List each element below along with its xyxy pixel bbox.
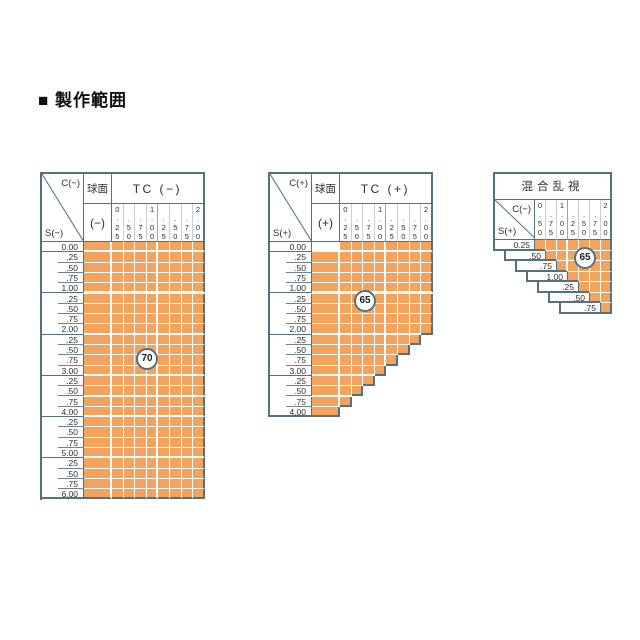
range-cell [135,273,147,283]
row-label-cell: 4.00 [42,407,84,417]
range-cell [84,242,112,252]
range-cell [124,376,136,386]
range-cell [147,458,159,468]
range-cell [312,345,340,355]
row-label-cell: 6.00 [42,489,84,499]
range-cell [112,458,124,468]
range-cell [84,314,112,324]
row-label-cell: .25 [42,417,84,427]
row-label-cell: .50 [42,304,84,314]
tc-column-header: .75 [182,204,194,242]
range-cell [124,263,136,273]
range-cell [193,304,205,314]
range-cell [312,304,340,314]
lens-diameter-badge: 65 [574,247,596,269]
range-cell [182,355,194,365]
tc-column-header-digit: 2 [601,201,610,210]
range-cell [182,417,194,427]
range-cell [158,283,170,293]
range-cell [124,458,136,468]
tc-column-header-digit: 2 [421,205,431,214]
range-cell [147,283,159,293]
range-cell [135,294,147,304]
range-cell [601,272,612,283]
range-cell [363,252,375,262]
page-title: ■ 製作範囲 [38,86,127,111]
range-cell [135,489,147,499]
range-cell [84,407,112,417]
range-cell [112,335,124,345]
range-cell [363,335,375,345]
range-cell [410,242,422,252]
range-cell [312,407,340,417]
range-cell [135,314,147,324]
sphere-axis-label: S(+) [273,228,291,239]
range-cell [375,283,387,293]
sphere-header-cell: 球面 [84,174,112,204]
range-cell [363,242,375,252]
range-cell [375,242,387,252]
range-cell [386,252,398,262]
range-cell [352,355,364,365]
range-cell [363,324,375,334]
sphere-header-cell: 球面 [312,174,340,204]
range-cell [84,324,112,334]
range-cell [112,417,124,427]
row-label-cell: 5.00 [42,448,84,458]
range-cell [158,355,170,365]
range-cell [158,376,170,386]
range-cell [112,314,124,324]
row-label-cell: .75 [515,261,557,272]
tc-column-header-digit: 5 [182,232,193,241]
range-cell [158,479,170,489]
range-cell [182,386,194,396]
range-cell [170,366,182,376]
range-cell [312,376,340,386]
tc-column-header-digit [386,205,397,214]
range-cell [182,273,194,283]
range-cell [124,489,136,499]
sphere-sign-cell: (−) [84,204,112,242]
range-cell [386,263,398,273]
tc-column-header-digit: . [421,214,431,223]
tc-column-header-digit: 0 [601,219,610,228]
range-cell [193,314,205,324]
range-cell [352,314,364,324]
tc-column-header-digit: . [135,214,146,223]
range-cell [170,448,182,458]
tc-column-header-digit: . [375,214,386,223]
range-cell [340,397,352,407]
range-cell [124,417,136,427]
row-label-cell: .25 [270,252,312,262]
tc-column-header-digit: 1 [147,205,158,214]
range-cell [170,252,182,262]
sphere-sign-cell: (+) [312,204,340,242]
range-cell [398,273,410,283]
range-cell [182,283,194,293]
tc-column-header-digit: . [386,214,397,223]
range-cell [124,355,136,365]
range-cell [557,251,568,262]
range-cell [375,355,387,365]
tc-column-header-digit [170,205,181,214]
row-label-cell: .25 [270,335,312,345]
range-cell [182,469,194,479]
range-cell [386,273,398,283]
range-cell [124,345,136,355]
range-cell [182,489,194,499]
tc-column-header-digit: 5 [535,219,545,228]
range-cell [312,252,340,262]
range-cell [135,386,147,396]
range-cell [124,448,136,458]
range-cell [312,324,340,334]
range-cell [312,273,340,283]
row-label-cell: 0.25 [493,240,535,251]
tc-plus-range-table: C(+)S(+)球面TC (+)(+)0.25.50.751.00.25.50.… [268,172,433,417]
range-cell [601,293,612,304]
range-cell [135,469,147,479]
range-cell [579,282,590,293]
row-label-cell: .50 [548,293,590,304]
range-cell [124,252,136,262]
range-cell [84,263,112,273]
range-cell [193,489,205,499]
range-cell [158,294,170,304]
range-cell [170,489,182,499]
range-cell [546,251,557,262]
range-cell [84,479,112,489]
range-cell [170,242,182,252]
row-label-cell: .50 [504,251,546,262]
range-cell [124,386,136,396]
range-cell [312,314,340,324]
range-cell [135,376,147,386]
range-cell [135,324,147,334]
range-cell [340,355,352,365]
tc-column-header-digit: 0 [398,232,409,241]
range-cell [158,263,170,273]
range-cell [124,273,136,283]
range-cell [124,324,136,334]
tc-column-header-digit: 5 [568,228,578,237]
range-cell [112,479,124,489]
range-cell [135,458,147,468]
range-cell [386,304,398,314]
range-cell [147,386,159,396]
range-cell [410,335,422,345]
range-cell [147,479,159,489]
range-cell [135,448,147,458]
range-cell [124,314,136,324]
tc-column-header: 0.50 [535,200,546,240]
row-label-cell: .25 [270,294,312,304]
tc-column-header-digit: . [579,210,589,219]
range-cell [135,242,147,252]
tc-column-header: .50 [124,204,136,242]
cylinder-axis-label: C(+) [289,178,308,189]
range-cell [410,252,422,262]
range-cell [84,469,112,479]
tc-column-header: .50 [352,204,364,242]
tc-column-header-digit: . [352,214,363,223]
range-cell [340,366,352,376]
range-cell [352,335,364,345]
range-cell [193,417,205,427]
row-label-cell: .50 [270,263,312,273]
range-cell [112,242,124,252]
range-cell [363,376,375,386]
range-cell [112,263,124,273]
lens-diameter-badge: 65 [354,290,376,312]
range-cell [84,304,112,314]
range-cell [112,273,124,283]
tc-column-header-digit: . [535,210,545,219]
range-cell [182,304,194,314]
row-label-cell: .25 [537,282,579,293]
row-label-cell: 1.00 [526,272,568,283]
range-cell [352,366,364,376]
range-cell [84,283,112,293]
range-cell [84,345,112,355]
range-cell [84,376,112,386]
range-cell [590,282,601,293]
range-cell [170,283,182,293]
row-label-cell: 3.00 [270,366,312,376]
range-cell [135,335,147,345]
range-cell [147,335,159,345]
tc-column-header-digit: 5 [579,219,589,228]
tc-column-header-digit: 0 [340,205,351,214]
tc-column-header-digit [568,201,578,210]
tc-column-header-digit: 5 [158,232,169,241]
tc-column-header-digit: . [590,210,600,219]
range-cell [601,282,612,293]
tc-column-header-digit: 0 [535,201,545,210]
range-cell [386,345,398,355]
range-cell [375,324,387,334]
range-cell [84,335,112,345]
range-cell [158,489,170,499]
range-cell [124,366,136,376]
tc-column-header-digit: . [340,214,351,223]
range-cell [158,273,170,283]
tc-column-header-digit [410,205,421,214]
range-cell [84,386,112,396]
range-cell [112,448,124,458]
range-cell [312,397,340,407]
range-cell [182,324,194,334]
range-cell [340,242,352,252]
tc-column-header: .50 [170,204,182,242]
range-cell [112,283,124,293]
tc-column-header-digit: 7 [590,219,600,228]
range-cell [363,314,375,324]
tc-column-header-digit: . [363,214,374,223]
tc-column-header-digit [590,201,600,210]
mixed-astigmatism-range-table: 混合乱視C(−)S(+)0.50.751.00.25.50.752.000.25… [493,172,616,318]
range-cell [158,438,170,448]
tc-column-header-digit: . [557,210,567,219]
range-cell [124,438,136,448]
tc-header-cell: TC (−) [112,174,205,204]
range-cell [386,294,398,304]
range-cell [147,427,159,437]
range-cell [112,304,124,314]
range-cell [170,407,182,417]
range-cell [340,283,352,293]
range-cell [352,386,364,396]
range-cell [135,479,147,489]
range-cell [410,324,422,334]
tc-column-header-digit: 0 [557,228,567,237]
range-cell [170,417,182,427]
range-cell [398,252,410,262]
range-cell [182,427,194,437]
tc-column-header-digit: 5 [112,232,123,241]
row-label-cell: .50 [42,386,84,396]
row-label-cell: 4.00 [270,407,312,417]
tc-column-header: .75 [135,204,147,242]
range-cell [557,240,568,251]
tc-column-header-digit: 0 [421,232,431,241]
range-cell [375,335,387,345]
range-cell [375,304,387,314]
tc-column-header-digit: . [398,214,409,223]
range-cell [112,355,124,365]
range-cell [124,304,136,314]
range-cell [193,376,205,386]
tc-column-header-digit: . [158,214,169,223]
tc-column-header-digit: 2 [568,219,578,228]
range-cell [84,366,112,376]
tc-column-header-digit: 0 [535,228,545,237]
cylinder-axis-label: C(−) [512,204,531,215]
tc-column-header: 2.00 [193,204,205,242]
tc-column-header-digit: 7 [546,219,556,228]
tc-column-header-digit: 0 [193,232,203,241]
tc-column-header-digit: . [546,210,556,219]
tc-column-header-digit [363,205,374,214]
range-cell [363,366,375,376]
sphere-axis-label: S(−) [45,228,63,239]
range-cell [398,242,410,252]
range-cell [421,314,433,324]
range-cell [170,345,182,355]
range-cell [112,386,124,396]
tc-column-header: 1.00 [375,204,387,242]
range-cell [340,252,352,262]
range-cell [135,252,147,262]
range-cell [147,417,159,427]
tc-column-header: 0.25 [340,204,352,242]
range-cell [375,366,387,376]
row-label-cell: .75 [270,314,312,324]
range-cell [398,335,410,345]
range-cell [182,335,194,345]
range-cell [535,240,546,251]
range-cell [546,240,557,251]
tc-column-header-digit: 0 [193,223,203,232]
tc-column-header-digit: 2 [386,223,397,232]
row-label-cell: .75 [42,438,84,448]
tc-column-header-digit [579,201,589,210]
range-cell [124,469,136,479]
axis-corner-cell: C(+)S(+) [270,174,312,242]
row-label-cell: .25 [42,294,84,304]
range-cell [84,438,112,448]
row-label-cell: .75 [42,397,84,407]
range-cell [147,294,159,304]
tc-minus-range-table: C(−)S(−)球面TC (−)(−)0.25.50.751.00.25.50.… [40,172,205,500]
range-cell [340,386,352,396]
tc-column-header-digit: 2 [158,223,169,232]
range-cell [421,294,433,304]
range-cell [158,242,170,252]
tc-column-header-digit: 5 [363,232,374,241]
range-cell [398,314,410,324]
range-cell [363,345,375,355]
row-label-cell: .75 [270,355,312,365]
range-cell [84,273,112,283]
range-cell [193,294,205,304]
range-cell [84,427,112,437]
row-label-cell: .75 [42,273,84,283]
range-cell [147,263,159,273]
axis-corner-cell: C(−)S(−) [42,174,84,242]
range-cell [135,397,147,407]
range-cell [182,252,194,262]
range-cell [386,314,398,324]
range-cell [421,304,433,314]
tc-column-header: .75 [546,200,557,240]
range-cell [340,376,352,386]
range-cell [112,438,124,448]
row-label-cell: 1.00 [270,283,312,293]
range-cell [601,303,612,314]
range-cell [158,386,170,396]
tc-column-header-digit: 5 [398,223,409,232]
range-cell [182,345,194,355]
range-cell [170,355,182,365]
tc-column-header: 1.00 [557,200,568,240]
row-label-cell: .25 [42,458,84,468]
row-label-cell: .50 [42,469,84,479]
tc-column-header-digit [124,205,135,214]
range-cell [112,427,124,437]
range-cell [135,427,147,437]
tc-column-header: .50 [579,200,590,240]
range-cell [158,324,170,334]
range-cell [147,273,159,283]
range-cell [352,376,364,386]
tc-column-header-digit: 5 [135,232,146,241]
range-cell [158,397,170,407]
range-cell [170,376,182,386]
tc-column-header-digit [158,205,169,214]
range-cell [340,294,352,304]
range-cell [410,283,422,293]
range-cell [398,345,410,355]
tc-column-header-digit: 2 [112,223,123,232]
range-cell [193,283,205,293]
tc-column-header: 2.00 [421,204,433,242]
range-cell [112,376,124,386]
range-cell [193,448,205,458]
range-cell [158,314,170,324]
